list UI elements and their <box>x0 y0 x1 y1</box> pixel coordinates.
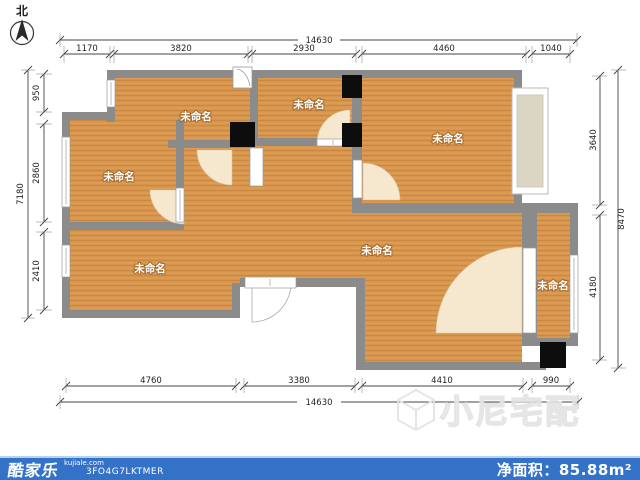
column-center-left <box>230 122 255 147</box>
floorplan-screen: 未命名 未命名 未命名 未命名 未命名 未命名 未命名 14630 1170 3… <box>0 0 640 480</box>
dim-left-2: 2860 <box>32 162 42 184</box>
small-door-symbol <box>233 67 252 88</box>
dim-top-2: 3820 <box>170 44 192 54</box>
net-area-value: 85.88m² <box>559 461 632 479</box>
room-label: 未命名 <box>431 132 464 145</box>
bay-window <box>512 88 548 194</box>
north-label: 北 <box>16 3 28 18</box>
floor-plan-canvas: 未命名 未命名 未命名 未命名 未命名 未命名 未命名 14630 1170 3… <box>0 0 640 456</box>
entrance-door-arc <box>252 283 291 322</box>
dim-left-total: 7180 <box>16 183 26 205</box>
room-label: 未命名 <box>179 110 212 123</box>
cube-logo-icon <box>398 390 434 430</box>
watermark-text: 小尼宅配 <box>440 392 580 431</box>
dim-left-3: 2410 <box>32 260 42 282</box>
column-top <box>342 75 362 98</box>
dim-left-1: 950 <box>32 85 42 101</box>
column-middle <box>342 123 362 147</box>
room-label: 未命名 <box>102 170 135 183</box>
dim-bottom-4: 990 <box>543 376 559 386</box>
dim-bottom-2: 3380 <box>288 376 310 386</box>
room-label: 未命名 <box>133 262 166 275</box>
dim-right-2: 4180 <box>589 276 599 298</box>
brand-sub: kujiale.com 3FO4G7LKTMER <box>64 460 164 478</box>
kujiale-logo: 酷家乐 <box>6 457 60 480</box>
dim-right-total: 8470 <box>617 208 627 230</box>
dim-right-1: 3640 <box>589 129 599 151</box>
net-area: 净面积：85.88m² <box>497 459 632 480</box>
dim-top-4: 4460 <box>433 44 455 54</box>
dim-top-1: 1170 <box>76 44 98 54</box>
room-label: 未命名 <box>360 244 393 257</box>
door-opening-right <box>523 248 536 333</box>
footer-bar: 酷家乐 kujiale.com 3FO4G7LKTMER 净面积：85.88m² <box>0 456 640 480</box>
column-bottom-right <box>540 342 566 368</box>
dim-top-3: 2930 <box>293 44 315 54</box>
door-leaf-hallway <box>250 148 263 186</box>
design-code: 3FO4G7LKTMER <box>86 468 164 478</box>
brand-block: 酷家乐 kujiale.com 3FO4G7LKTMER <box>8 457 164 480</box>
dim-bottom-1: 4760 <box>140 376 162 386</box>
north-arrow-icon: 北 <box>11 3 34 45</box>
dim-top-5: 1040 <box>540 44 562 54</box>
watermark: 小尼宅配 <box>398 390 580 431</box>
entrance-opening <box>245 277 296 288</box>
room-label: 未命名 <box>292 98 325 111</box>
room-label: 未命名 <box>536 279 569 292</box>
room-floor-right <box>537 213 570 338</box>
door-opening-top-right <box>353 160 362 198</box>
dim-bottom-3: 4410 <box>431 376 453 386</box>
net-area-label: 净面积： <box>497 461 559 479</box>
dim-bottom-total: 14630 <box>305 398 332 408</box>
